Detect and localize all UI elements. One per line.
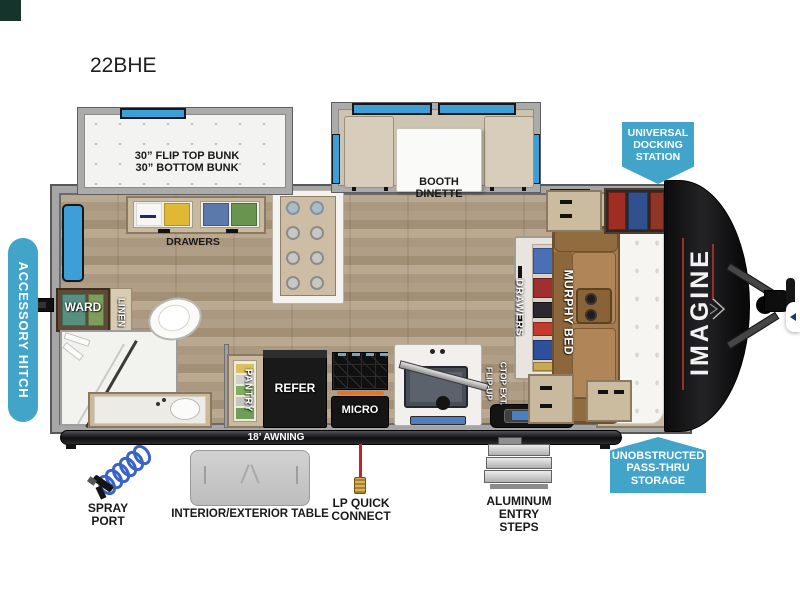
brand-emblem-icon	[708, 296, 730, 322]
dinette-side-window-icon	[332, 134, 340, 184]
folded-shirt-yellow	[164, 203, 190, 226]
portable-table	[190, 450, 310, 506]
bench-foot	[490, 187, 494, 191]
cabinet-handle-icon	[540, 386, 552, 390]
lp-line-icon	[359, 444, 362, 478]
tv-mount-pivot	[436, 396, 450, 410]
stored-blanket-red	[533, 278, 554, 298]
flip-up-label-line2: CTOP EXT.	[499, 358, 508, 408]
pantry-label: PANTRY	[242, 364, 253, 416]
overhead-cabinet	[546, 190, 602, 232]
murphy-drawers-label: DRAWERS	[513, 277, 524, 339]
hanging-clothes-blue	[628, 192, 648, 230]
flip-up-label-line1: FLIP-UP	[485, 360, 494, 406]
stored-game-box-blue	[533, 340, 554, 360]
bench-foot	[384, 187, 388, 191]
bench-foot	[352, 187, 356, 191]
entry-step	[486, 457, 552, 469]
unobstructed-pass-thru-badge: UNOBSTRUCTED PASS-THRU STORAGE	[610, 437, 706, 493]
cabinet-handle-icon	[560, 214, 572, 218]
dish-plate-icon	[310, 226, 324, 240]
rear-wall-window-icon	[62, 204, 84, 282]
faucet-icon	[430, 349, 435, 354]
murphy-bed-label: MURPHY BED	[562, 269, 575, 355]
accessory-hitch-badge-label: ACCESSORY HITCH	[8, 240, 38, 420]
lp-quick-connect-label: LP QUICK CONNECT	[330, 497, 392, 523]
entry-steps-label: ALUMINUM ENTRY STEPS	[478, 495, 560, 535]
spray-port-label: SPRAY PORT	[78, 502, 138, 528]
stored-game-box-red	[533, 322, 554, 336]
dinette-bench	[484, 116, 534, 188]
refrigerator-top	[263, 350, 327, 358]
drawer-handle-icon	[226, 229, 238, 233]
hanging-clothes-red	[608, 192, 626, 230]
faucet-icon	[156, 402, 160, 406]
dish-plate-icon	[286, 251, 300, 265]
stove-glint	[352, 353, 360, 356]
universal-docking-station-badge: UNIVERSAL DOCKING STATION	[622, 122, 694, 184]
entry-step-shadow	[490, 484, 548, 489]
folded-shirt-green	[231, 203, 257, 226]
awning-label: 18’ AWNING	[230, 433, 322, 444]
vanity-sink-icon	[170, 398, 200, 420]
stove-glint	[380, 353, 388, 356]
stove-cooktop	[332, 352, 388, 390]
linen-label: LINEN	[116, 290, 125, 336]
awning-bracket	[66, 444, 76, 449]
cupholder-icon	[585, 309, 597, 321]
folded-shirt-blue	[203, 203, 229, 226]
cabinet-handle-icon	[560, 200, 572, 204]
bunk-label: 30” FLIP TOP BUNK 30” BOTTOM BUNK	[100, 150, 274, 174]
faucet-icon	[440, 349, 445, 354]
table-slot	[296, 466, 298, 484]
stored-pillow-blue	[533, 248, 554, 274]
cabinet-handle-icon	[614, 390, 624, 394]
hanging-clothes-red	[650, 192, 664, 230]
bunk-drawers-label: DRAWERS	[158, 237, 228, 249]
booth-dinette-label: BOOTH DINETTE	[395, 176, 483, 200]
stove-glint	[338, 353, 346, 356]
dish-plate-icon	[286, 276, 300, 290]
dinette-bench	[344, 116, 394, 188]
cap-pinstripe	[682, 238, 684, 390]
stored-item-gold	[533, 362, 554, 371]
page-corner-decoration	[0, 0, 21, 21]
refer-label: REFER	[265, 382, 325, 395]
bed-foot-cabinet	[586, 380, 632, 422]
dish-plate-icon	[310, 251, 324, 265]
dinette-window-icon	[352, 103, 432, 115]
floorplan-page: 22BHE DRAWERS WARD LINEN	[0, 0, 800, 600]
ward-label: WARD	[58, 301, 108, 314]
dish-plate-icon	[310, 276, 324, 290]
stove-glint	[366, 353, 374, 356]
table-label: INTERIOR/EXTERIOR TABLE	[170, 508, 330, 521]
awning-bracket	[600, 444, 610, 449]
chevron-left-icon	[790, 313, 796, 321]
oven-handle	[337, 391, 384, 395]
entry-step	[488, 444, 550, 456]
micro-label: MICRO	[333, 405, 387, 417]
bunk-window-icon	[120, 108, 186, 119]
page-title: 22BHE	[90, 54, 210, 77]
dish-plate-icon	[286, 226, 300, 240]
cabinet-handle-icon	[598, 390, 608, 394]
cupholder-icon	[585, 293, 597, 305]
bedside-cabinet	[528, 374, 574, 424]
accessory-hitch-receiver-notch	[38, 302, 46, 308]
entry-step	[484, 470, 552, 483]
stored-game-box	[533, 302, 554, 318]
drawer-handle-icon	[158, 229, 170, 233]
faucet-icon	[162, 398, 166, 402]
awning-bar	[60, 430, 622, 445]
table-slot	[204, 466, 206, 484]
lp-fitting-icon	[354, 477, 366, 494]
entry-mat	[410, 416, 466, 425]
dinette-window-icon	[438, 103, 516, 115]
dish-plate-icon	[310, 201, 324, 215]
dish-plate-icon	[286, 201, 300, 215]
bench-foot	[522, 187, 526, 191]
cabinet-handle-icon	[540, 404, 552, 408]
shirt-logo-stripe	[140, 215, 156, 218]
